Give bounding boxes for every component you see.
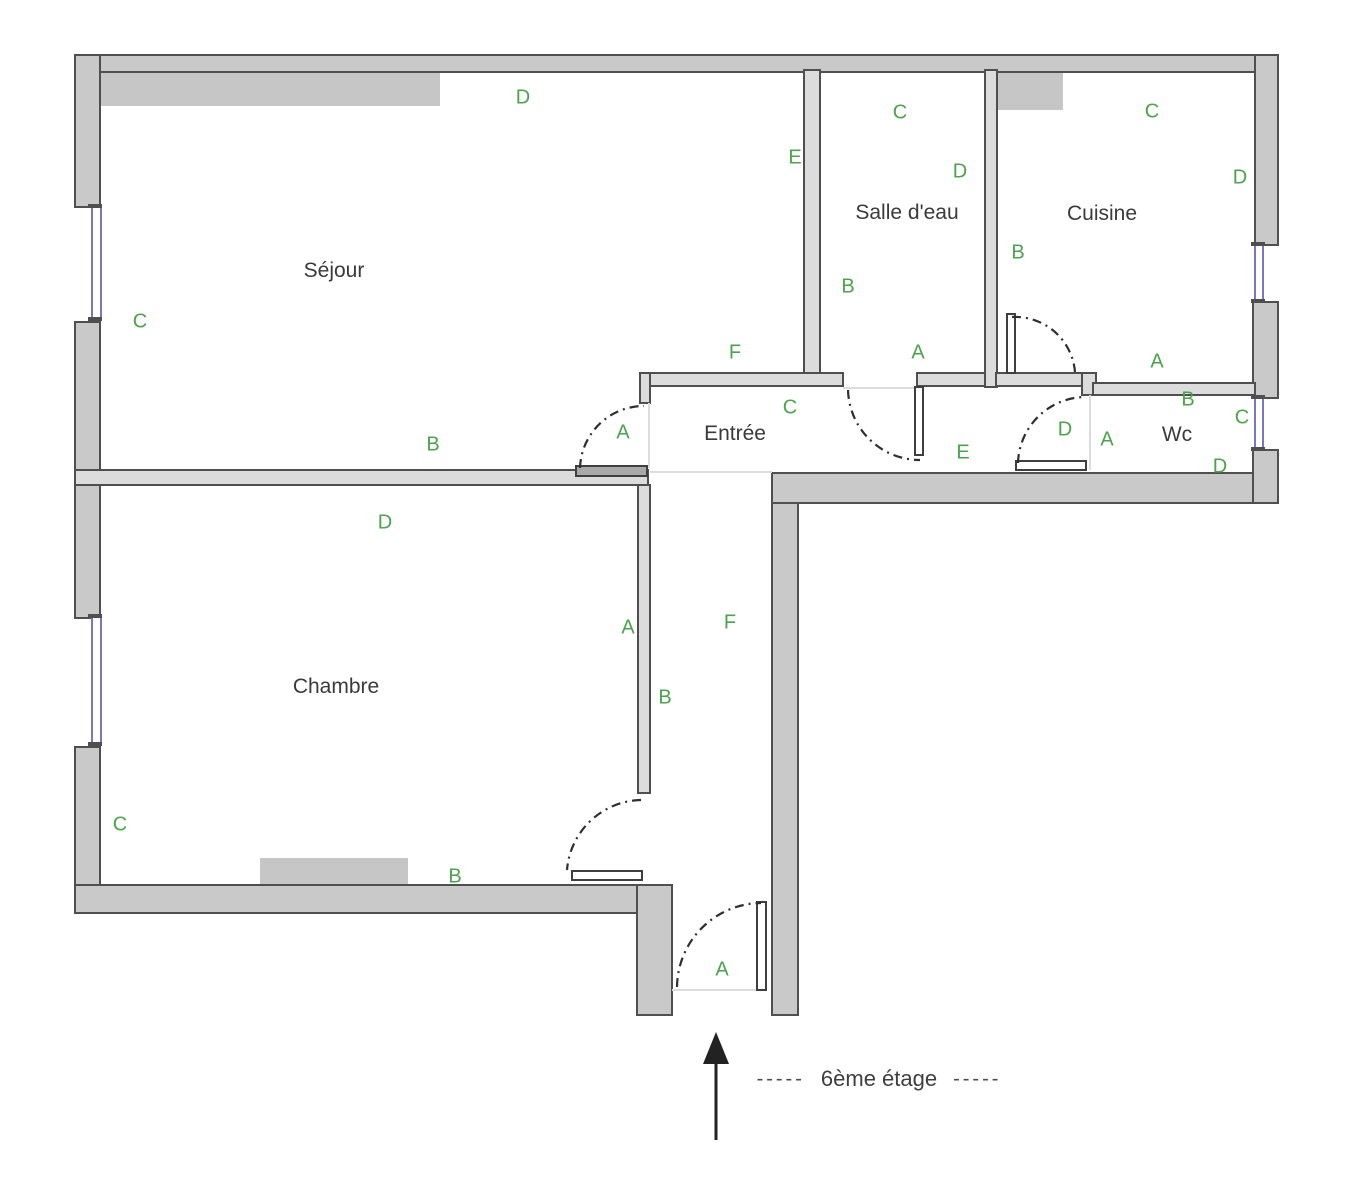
- cuisine-closet: [997, 72, 1063, 110]
- wall-salledeau-cuisine: [985, 70, 997, 387]
- window-cuisine-icon: [1251, 242, 1265, 303]
- interior-walls: [75, 70, 1255, 793]
- wall-letter: D: [1233, 167, 1247, 190]
- wall-top: [75, 55, 1278, 72]
- room-name-entre-e: Entrée: [704, 422, 766, 446]
- wall-letter: B: [1011, 242, 1024, 265]
- wall-letter: D: [378, 512, 392, 535]
- sejour-closet: [100, 72, 440, 106]
- door-leaf-salledeau: [915, 387, 923, 455]
- door-arc-salledeau: [848, 390, 920, 460]
- wall-letter: B: [1181, 389, 1194, 412]
- wall-letter: F: [729, 342, 741, 365]
- door-leaf-cuisine: [1007, 314, 1015, 373]
- door-arc-chambre: [567, 800, 641, 870]
- room-name-cuisine: Cuisine: [1067, 202, 1137, 226]
- wall-letter: C: [113, 814, 127, 837]
- entrance-arrow-icon: [703, 1032, 729, 1140]
- floor-caption-dashes-left: -----: [757, 1068, 805, 1091]
- wall-right-pier-1: [1255, 55, 1278, 245]
- wall-letter: C: [133, 311, 147, 334]
- wall-letter: C: [1235, 407, 1249, 430]
- wall-sejour-salledeau: [804, 70, 820, 373]
- floor-caption-text: 6ème étage: [821, 1066, 937, 1092]
- floor-caption: ----- 6ème étage -----: [748, 1066, 1010, 1092]
- wall-chambre-bottom: [75, 885, 638, 913]
- wall-letter: A: [621, 617, 634, 640]
- exterior-walls: [75, 55, 1278, 1015]
- wall-cuisine-south: [996, 373, 1082, 386]
- floor-plan: SéjourDECFABSalle d'eauCDBACuisineCDBAEn…: [0, 0, 1348, 1184]
- door-leaf-chambre: [572, 871, 642, 880]
- wall-letter: D: [516, 87, 530, 110]
- door-arc-wc: [1018, 397, 1085, 463]
- wall-letter: A: [1100, 429, 1113, 452]
- wall-right-pier-3: [1253, 450, 1278, 503]
- wall-letter: D: [1213, 456, 1227, 479]
- wall-letter: C: [893, 102, 907, 125]
- window-wc-icon: [1251, 395, 1265, 451]
- wall-letter: A: [616, 422, 629, 445]
- room-name-chambre: Chambre: [293, 675, 379, 699]
- wall-sejour-chambre: [75, 470, 648, 485]
- wall-letter: D: [953, 161, 967, 184]
- door-leaf-entrance: [757, 902, 766, 990]
- wall-letter: B: [426, 434, 439, 457]
- wall-left-pier-1: [75, 55, 100, 207]
- door-arc-sejour: [580, 406, 644, 468]
- wall-letter: C: [1145, 101, 1159, 124]
- room-name-wc: Wc: [1162, 423, 1192, 447]
- window-chambre-icon: [88, 614, 102, 746]
- chambre-closet: [260, 858, 408, 886]
- wall-corridor-right: [772, 473, 798, 1015]
- wall-salledeau-south: [917, 373, 985, 386]
- room-name-salle-d-eau: Salle d'eau: [855, 201, 958, 225]
- wall-letter: F: [724, 612, 736, 635]
- wall-chambre-east: [638, 485, 650, 793]
- wall-wc-north: [1093, 383, 1255, 395]
- floor-caption-dashes-right: -----: [953, 1068, 1001, 1091]
- wall-letter: E: [788, 147, 801, 170]
- wall-entree-stub: [640, 373, 650, 403]
- wall-entree-north: [640, 373, 843, 386]
- wall-letter: E: [956, 442, 969, 465]
- wall-right-pier-2: [1253, 302, 1278, 398]
- door-arc-cuisine: [1012, 317, 1075, 372]
- wall-letter: C: [783, 397, 797, 420]
- room-name-se-jour: Séjour: [304, 259, 365, 283]
- wall-letter: B: [658, 687, 671, 710]
- floor-plan-drawing: [0, 0, 1348, 1184]
- window-sejour-icon: [88, 204, 102, 321]
- door-leaf-wc: [1016, 461, 1086, 470]
- wall-letter: A: [1150, 351, 1163, 374]
- wall-letter: B: [841, 276, 854, 299]
- wall-corridor-south: [772, 473, 1278, 503]
- wall-letter: B: [448, 866, 461, 889]
- wall-vestibule-left: [637, 885, 672, 1015]
- door-leaf-sejour: [576, 466, 647, 476]
- wall-letter: A: [715, 959, 728, 982]
- wall-letter: A: [911, 342, 924, 365]
- wall-letter: D: [1058, 419, 1072, 442]
